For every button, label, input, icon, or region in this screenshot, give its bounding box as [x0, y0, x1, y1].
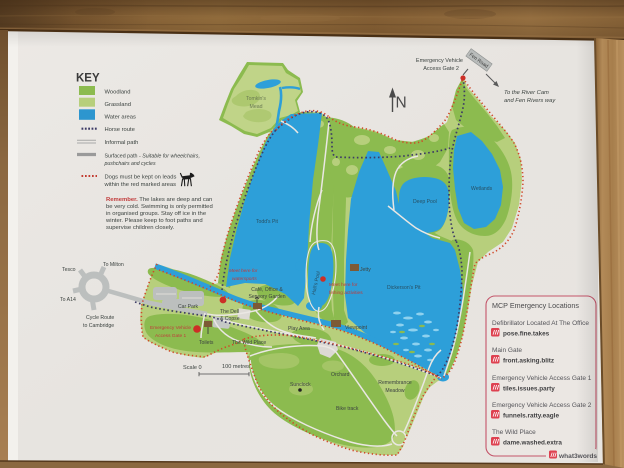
svg-text:Car Park: Car Park — [178, 304, 199, 310]
svg-text:To A14: To A14 — [60, 297, 76, 303]
svg-text:Surfaced path - Suitable for w: Surfaced path - Suitable for wheelchairs… — [105, 154, 200, 160]
svg-text:Meet here for: Meet here for — [329, 282, 358, 288]
svg-text:N: N — [396, 95, 407, 112]
svg-text:Play Area: Play Area — [288, 326, 310, 332]
svg-text:Wetlands: Wetlands — [471, 186, 493, 192]
svg-text:front.asking.blitz: front.asking.blitz — [503, 358, 554, 365]
svg-text:100 metres: 100 metres — [222, 364, 250, 370]
svg-text:Jetty: Jetty — [360, 267, 371, 273]
svg-text:and Fen Rivers way: and Fen Rivers way — [504, 98, 556, 104]
svg-text:funnels.ratty.eagle: funnels.ratty.eagle — [503, 413, 559, 420]
svg-text:Woodland: Woodland — [105, 90, 131, 96]
svg-text:Emergency Vehicle: Emergency Vehicle — [416, 58, 463, 64]
svg-text:Sensory Garden: Sensory Garden — [248, 294, 285, 300]
svg-text:dame.washed.extra: dame.washed.extra — [503, 440, 562, 447]
svg-text:& Copse: & Copse — [220, 316, 240, 322]
svg-text:Toilets: Toilets — [199, 340, 214, 346]
svg-text:be very cold. Swimming is only: be very cold. Swimming is only permitted — [106, 204, 213, 210]
svg-text:The Dell: The Dell — [220, 309, 239, 315]
svg-text:in organised groups. Stay off: in organised groups. Stay off ice in the — [106, 211, 207, 217]
svg-text:Cycle Route: Cycle Route — [86, 315, 114, 321]
svg-text:Deep Pool: Deep Pool — [413, 199, 437, 205]
svg-text:Mead: Mead — [250, 104, 263, 110]
svg-text:The Wild Place: The Wild Place — [492, 429, 536, 436]
svg-text:Todd's Pit: Todd's Pit — [256, 219, 279, 225]
svg-text:Viewpoint: Viewpoint — [345, 325, 368, 331]
svg-text:Access Gate 2: Access Gate 2 — [423, 66, 459, 72]
svg-text:Water areas: Water areas — [105, 115, 136, 121]
svg-text:within the red marked areas: within the red marked areas — [104, 182, 177, 188]
svg-text:Main Gate: Main Gate — [492, 347, 522, 354]
svg-text:KEY: KEY — [76, 73, 100, 85]
svg-text:supervise children closely.: supervise children closely. — [106, 225, 175, 231]
svg-text:winter. Please keep to foot pa: winter. Please keep to foot paths and — [105, 218, 203, 224]
svg-text:Tomkin's: Tomkin's — [246, 96, 266, 102]
svg-text:Informal path: Informal path — [105, 140, 139, 146]
svg-text:Grassland: Grassland — [105, 102, 131, 108]
svg-text:Dogs must be kept on leads: Dogs must be kept on leads — [105, 175, 177, 181]
svg-text:Tesco: Tesco — [62, 267, 76, 273]
svg-text:Meet here for: Meet here for — [229, 268, 258, 274]
svg-text:pose.fine.takes: pose.fine.takes — [503, 331, 550, 338]
svg-text:pushchairs and cycles: pushchairs and cycles — [104, 161, 156, 167]
svg-text:Horse route: Horse route — [105, 127, 135, 133]
svg-text:Bike track: Bike track — [336, 406, 359, 412]
svg-text:tiles.issues.party: tiles.issues.party — [503, 386, 555, 393]
svg-text:MCP Emergency Locations: MCP Emergency Locations — [492, 301, 579, 310]
svg-text:Café, Office &: Café, Office & — [251, 287, 283, 293]
svg-text:to Cambridge: to Cambridge — [83, 323, 114, 329]
svg-text:Orchard: Orchard — [331, 372, 350, 378]
svg-text:Dickerson's Pit: Dickerson's Pit — [387, 285, 421, 291]
svg-text:Meadow: Meadow — [385, 388, 405, 394]
svg-text:Remember. The lakes are deep a: Remember. The lakes are deep and can — [106, 197, 212, 203]
svg-text:Access Gate 1: Access Gate 1 — [155, 333, 187, 339]
svg-text:Defibrillator Located At The O: Defibrillator Located At The Office — [492, 320, 589, 327]
svg-text:Scale 0: Scale 0 — [183, 365, 202, 371]
svg-text:To Milton: To Milton — [103, 262, 124, 268]
svg-text:To the River Cam: To the River Cam — [504, 90, 549, 96]
svg-text:Sunclock: Sunclock — [290, 382, 311, 388]
svg-text:Remembrance: Remembrance — [378, 380, 412, 386]
svg-text:watersports: watersports — [232, 276, 257, 282]
svg-text:fishing activities: fishing activities — [329, 290, 363, 296]
svg-text:The Wild Place: The Wild Place — [232, 340, 266, 346]
svg-text:Emergency Vehicle: Emergency Vehicle — [150, 325, 191, 331]
